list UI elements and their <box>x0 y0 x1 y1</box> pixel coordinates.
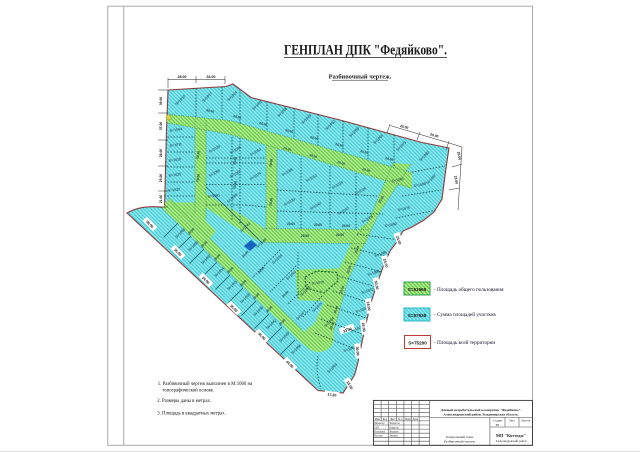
svg-text:S=75200: S=75200 <box>408 341 427 346</box>
svg-text:Лист: Лист <box>509 419 516 423</box>
svg-text:Кол: Кол <box>383 418 388 421</box>
svg-text:Генеральный план.: Генеральный план. <box>446 435 474 439</box>
svg-text:Зимина: Зимина <box>390 435 399 438</box>
svg-text:Листов: Листов <box>521 419 530 423</box>
svg-text:Яковлев: Яковлев <box>390 430 400 433</box>
svg-text:3. Площадь в квадратных метрах: 3. Площадь в квадратных метрах. <box>157 412 226 417</box>
svg-text:39.00: 39.00 <box>159 97 163 106</box>
svg-text:34.00: 34.00 <box>207 75 216 79</box>
svg-text:20.00: 20.00 <box>314 223 322 227</box>
svg-text:МП "Коттедж": МП "Коттедж" <box>496 433 526 438</box>
svg-text:ГАП: ГАП <box>374 426 379 429</box>
svg-text:- Площадь общего пользования: - Площадь общего пользования <box>434 286 504 293</box>
svg-text:Стадия: Стадия <box>493 419 502 423</box>
svg-text:28.00: 28.00 <box>159 149 163 158</box>
svg-text:Подп: Подп <box>405 418 412 421</box>
svg-text:37.00: 37.00 <box>159 122 163 131</box>
svg-text:21.00: 21.00 <box>159 195 163 204</box>
svg-text:№ д: № д <box>398 418 403 421</box>
svg-text:- Сумма площадей участков: - Сумма площадей участков <box>434 311 496 318</box>
svg-text:топографической основе.: топографической основе. <box>162 388 214 393</box>
svg-text:- Площадь всей территории: - Площадь всей территории <box>434 339 495 346</box>
svg-text:Н.контр: Н.контр <box>374 435 383 438</box>
svg-text:2. Размеры даны в метрах.: 2. Размеры даны в метрах. <box>157 399 211 404</box>
svg-text:Разбивочный чертеж.: Разбивочный чертеж. <box>444 440 476 444</box>
svg-text:Изм: Изм <box>375 418 380 421</box>
svg-text:ГЕНПЛАН ДПК "Федяйково".: ГЕНПЛАН ДПК "Федяйково". <box>284 43 447 59</box>
svg-text:Директор: Директор <box>374 422 385 425</box>
svg-text:S=61565: S=61565 <box>408 287 427 292</box>
svg-text:20.00: 20.00 <box>336 233 344 237</box>
svg-text:Лист: Лист <box>390 418 397 421</box>
svg-text:Черкасов: Черкасов <box>390 422 401 425</box>
svg-text:20.00: 20.00 <box>287 222 295 226</box>
svg-text:25.00: 25.00 <box>159 174 163 183</box>
svg-text:Борисов: Борисов <box>390 426 400 429</box>
svg-text:Дачный потребительский коопера: Дачный потребительский кооператив "Федяй… <box>441 408 522 412</box>
svg-text:28.00: 28.00 <box>178 75 187 79</box>
svg-text:РЧ: РЧ <box>496 423 500 427</box>
svg-text:Дата: Дата <box>413 418 419 421</box>
svg-text:Разбивочный чертеж.: Разбивочный чертеж. <box>329 74 392 81</box>
svg-text:Исполнил: Исполнил <box>374 430 386 433</box>
svg-text:20.00: 20.00 <box>342 224 350 228</box>
svg-text:S=57635: S=57635 <box>408 313 427 318</box>
svg-text:Александровский район. Владими: Александровский район. Владимирская обла… <box>443 413 518 417</box>
svg-text:1. Разбивочный чертеж выполнен: 1. Разбивочный чертеж выполнен в М:1000 … <box>158 382 253 387</box>
svg-text:20.00: 20.00 <box>301 234 309 238</box>
svg-text:Александровский район: Александровский район <box>496 439 527 443</box>
